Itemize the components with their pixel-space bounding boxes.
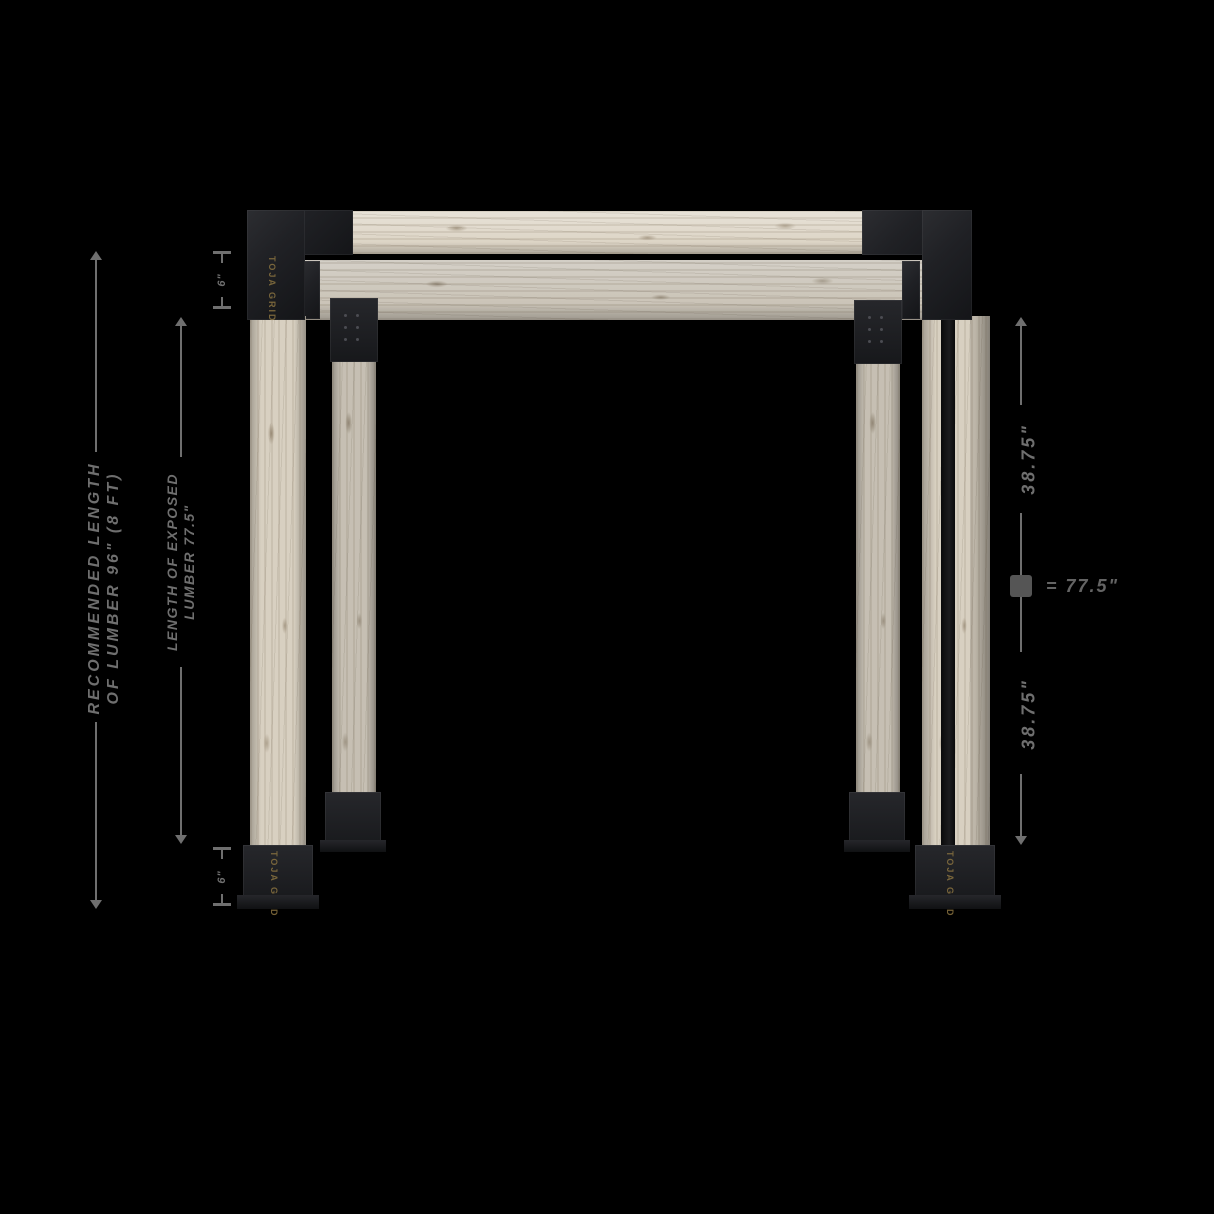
dim-label-bracket-height: 6" xyxy=(216,273,228,286)
front-post-left xyxy=(250,316,306,850)
dim-arrow-down xyxy=(90,900,102,909)
dim-line xyxy=(221,850,223,859)
dim-label-recommended-lumber: RECOMMENDED LENGTH OF LUMBER 96" (8 FT) xyxy=(85,461,123,714)
corner-bracket-right-post-arm xyxy=(922,210,972,320)
base-flange xyxy=(320,840,386,852)
dim-label-lower-half: 38.75" xyxy=(1019,678,1040,750)
dim-label-exposed-lumber: LENGTH OF EXPOSED LUMBER 77.5" xyxy=(164,473,198,651)
front-beam xyxy=(340,211,870,254)
rear-post-right xyxy=(856,302,900,852)
rear-post-left xyxy=(332,302,376,852)
brand-logo-text: TOJA GRID xyxy=(267,256,277,323)
front-post-base-left: TOJA GRID xyxy=(243,845,313,907)
rear-post-base-left xyxy=(325,792,381,852)
dim-tick xyxy=(213,306,231,309)
knect-plate-left xyxy=(330,298,378,362)
dim-midpoint-marker xyxy=(1010,575,1032,597)
dim-label-total-height: = 77.5" xyxy=(1046,576,1119,597)
rear-beam-corner-channel-right xyxy=(902,261,920,319)
dim-arrow-down xyxy=(1015,836,1027,845)
dim-line xyxy=(1020,513,1022,575)
dim-line xyxy=(1020,325,1022,405)
corner-bracket-left-post-arm: TOJA GRID xyxy=(247,210,305,320)
dim-line xyxy=(180,667,182,837)
rear-post-sliver-shade xyxy=(970,316,990,850)
dim-line xyxy=(1020,774,1022,838)
bolt-dots xyxy=(344,314,347,317)
rear-beam xyxy=(300,260,922,320)
post-gap-shadow-stripe xyxy=(941,316,955,850)
dim-line xyxy=(95,259,97,452)
front-post-right xyxy=(922,316,990,850)
base-flange xyxy=(909,895,1001,909)
rear-post-base-right xyxy=(849,792,905,852)
base-flange xyxy=(844,840,910,852)
knect-plate-right xyxy=(854,300,902,364)
dim-line xyxy=(180,325,182,457)
dim-label-base-height: 6" xyxy=(216,870,228,883)
dim-line xyxy=(95,722,97,902)
dim-arrow-down xyxy=(175,835,187,844)
dim-line xyxy=(221,254,223,263)
front-post-base-right: TOJA GRID xyxy=(915,845,995,907)
base-flange xyxy=(237,895,319,909)
dim-label-upper-half: 38.75" xyxy=(1019,423,1040,495)
dim-line xyxy=(221,894,223,903)
dim-line xyxy=(221,297,223,306)
dim-line xyxy=(1020,597,1022,652)
bolt-dots xyxy=(868,316,871,319)
pergola-render-canvas: TOJA GRID TOJA GRID TOJA GRID RECOMMENDE… xyxy=(0,0,1214,1214)
dim-tick xyxy=(213,903,231,906)
